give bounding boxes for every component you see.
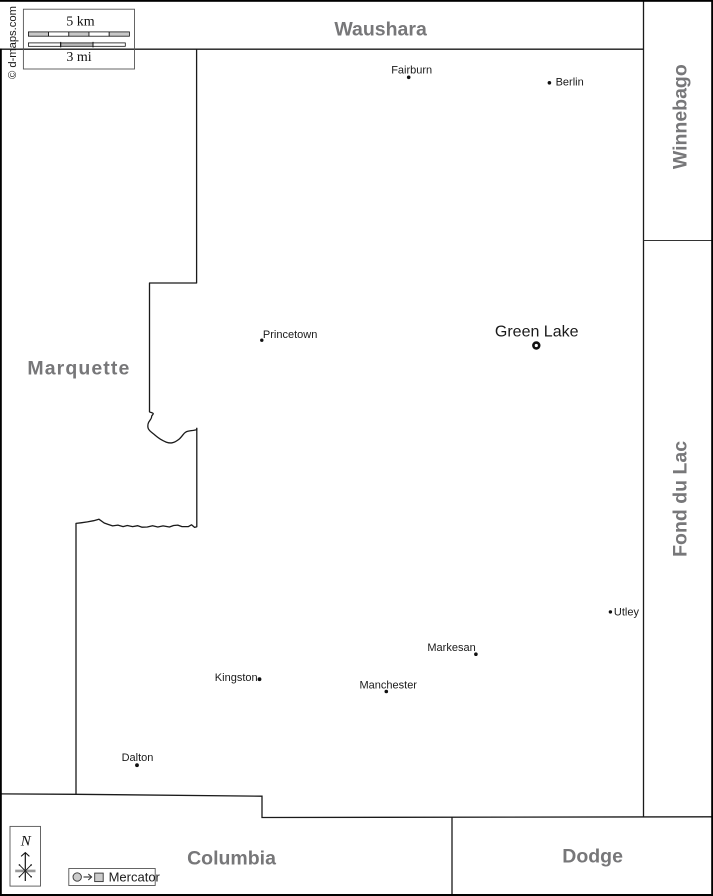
svg-text:Winnebago: Winnebago (669, 64, 691, 169)
svg-text:Dodge: Dodge (562, 845, 623, 867)
svg-text:Markesan: Markesan (427, 642, 475, 654)
svg-text:Princetown: Princetown (263, 329, 317, 341)
svg-text:Fairburn: Fairburn (391, 65, 432, 77)
svg-text:Waushara: Waushara (334, 18, 427, 40)
svg-text:Fond du Lac: Fond du Lac (670, 441, 692, 557)
svg-text:Marquette: Marquette (27, 357, 130, 379)
svg-text:© d-maps.com: © d-maps.com (7, 6, 19, 79)
svg-text:5 km: 5 km (66, 15, 95, 30)
svg-text:Berlin: Berlin (556, 77, 584, 89)
svg-text:Dalton: Dalton (122, 752, 154, 764)
svg-text:Kingston: Kingston (215, 672, 258, 684)
svg-text:Columbia: Columbia (187, 847, 276, 869)
svg-text:Manchester: Manchester (360, 679, 418, 691)
svg-text:Green Lake: Green Lake (495, 324, 579, 341)
svg-text:Mercator: Mercator (109, 870, 161, 885)
svg-text:3 mi: 3 mi (66, 50, 91, 65)
svg-text:Utley: Utley (614, 606, 640, 618)
svg-text:N: N (20, 833, 32, 849)
